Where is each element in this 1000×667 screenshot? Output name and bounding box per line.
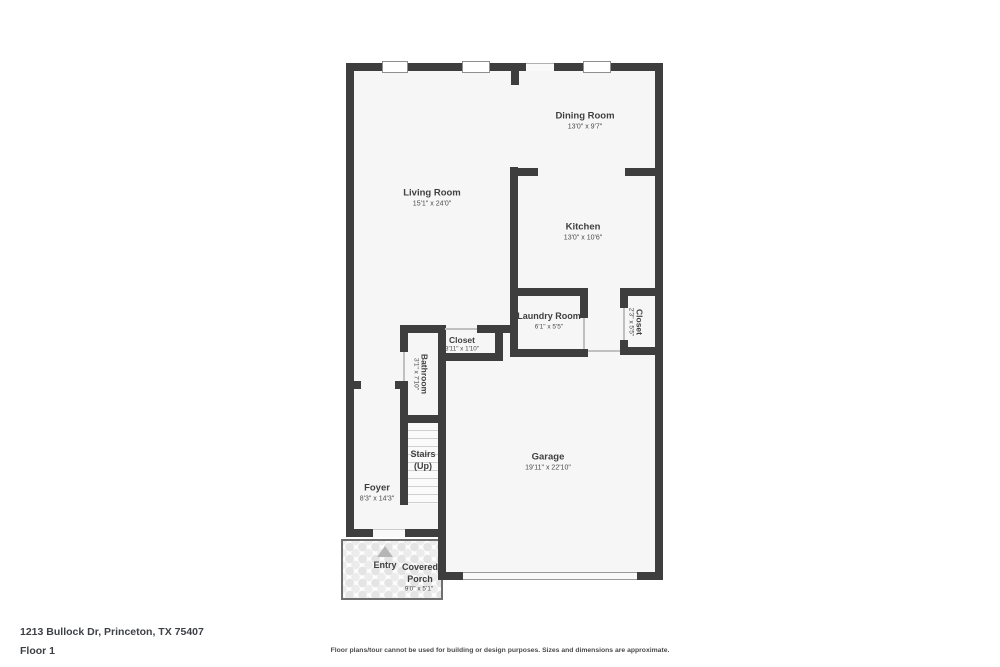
room-label-stairs-up: (Up): [414, 461, 432, 471]
wall-segment: [495, 333, 503, 361]
wall-segment: [400, 415, 446, 423]
room-dims-laundry: 6'1" x 5'5": [535, 324, 563, 331]
wall-segment: [395, 381, 408, 389]
room-label-right-closet-name: Closet: [635, 308, 645, 336]
window: [462, 61, 490, 73]
door-opening-line: [445, 328, 477, 330]
wall-segment: [510, 168, 538, 176]
door-opening-line: [623, 308, 625, 340]
wall-tick: [354, 381, 361, 389]
room-label-hall-closet: Closet: [449, 335, 475, 345]
room-label-porch-line1: Covered: [402, 562, 438, 572]
wall-segment: [438, 325, 446, 580]
floor-fill-garage: [442, 400, 659, 576]
room-label-bathroom-name: Bathroom: [420, 354, 430, 394]
wall-segment: [620, 296, 628, 308]
room-label-kitchen: Kitchen: [566, 222, 601, 233]
room-label-right-closet: Closet 2'3" x 5'5": [628, 308, 645, 336]
room-label-garage: Garage: [532, 452, 565, 463]
room-dims-garage: 19'11" x 22'10": [525, 465, 571, 472]
disclaimer-text: Floor plans/tour cannot be used for buil…: [0, 647, 1000, 654]
wall-segment: [625, 168, 663, 176]
room-label-bathroom: Bathroom 3'1" x 7'10": [413, 354, 430, 394]
room-label-living: Living Room: [403, 188, 461, 199]
wall-segment: [510, 349, 588, 357]
room-dims-bathroom: 3'1" x 7'10": [413, 354, 420, 394]
wall-segment: [620, 288, 663, 296]
door-opening-line: [583, 318, 585, 349]
wall-segment: [655, 63, 663, 580]
entry-arrow-icon: [377, 546, 393, 557]
room-label-foyer: Foyer: [364, 483, 390, 494]
room-dims-porch: 9'0" x 5'1": [405, 586, 433, 593]
wall-segment: [637, 572, 663, 580]
room-dims-hall-closet: 3'11" x 1'10": [445, 346, 479, 353]
room-dims-dining: 13'0" x 9'7": [568, 124, 603, 131]
window: [583, 61, 611, 73]
passage-line: [588, 350, 620, 352]
wall-segment: [477, 325, 513, 333]
room-dims-kitchen: 13'0" x 10'6": [564, 235, 602, 242]
room-dims-living: 15'1" x 24'0": [413, 201, 451, 208]
wall-segment: [400, 423, 408, 505]
wall-segment: [400, 325, 408, 352]
room-dims-right-closet: 2'3" x 5'5": [628, 308, 635, 336]
room-label-dining: Dining Room: [555, 111, 614, 122]
wall-segment: [510, 288, 588, 296]
wall-segment: [438, 353, 503, 361]
room-label-entry: Entry: [373, 560, 396, 570]
wall-opening: [526, 63, 554, 71]
door-opening-line: [403, 352, 405, 381]
room-label-porch-line2: Porch: [407, 574, 433, 584]
front-door-opening: [373, 529, 405, 537]
room-label-stairs: Stairs: [410, 449, 435, 459]
address-text: 1213 Bullock Dr, Princeton, TX 75407: [20, 626, 204, 638]
floorplan-page: Dining Room 13'0" x 9'7" Living Room 15'…: [0, 0, 1000, 667]
wall-segment: [511, 71, 519, 85]
wall-segment: [346, 63, 354, 537]
room-dims-foyer: 8'3" x 14'3": [360, 496, 395, 503]
wall-segment: [580, 296, 588, 318]
room-label-laundry: Laundry Room: [517, 311, 581, 321]
wall-segment: [620, 347, 663, 355]
garage-door-opening: [463, 572, 637, 580]
window: [382, 61, 408, 73]
